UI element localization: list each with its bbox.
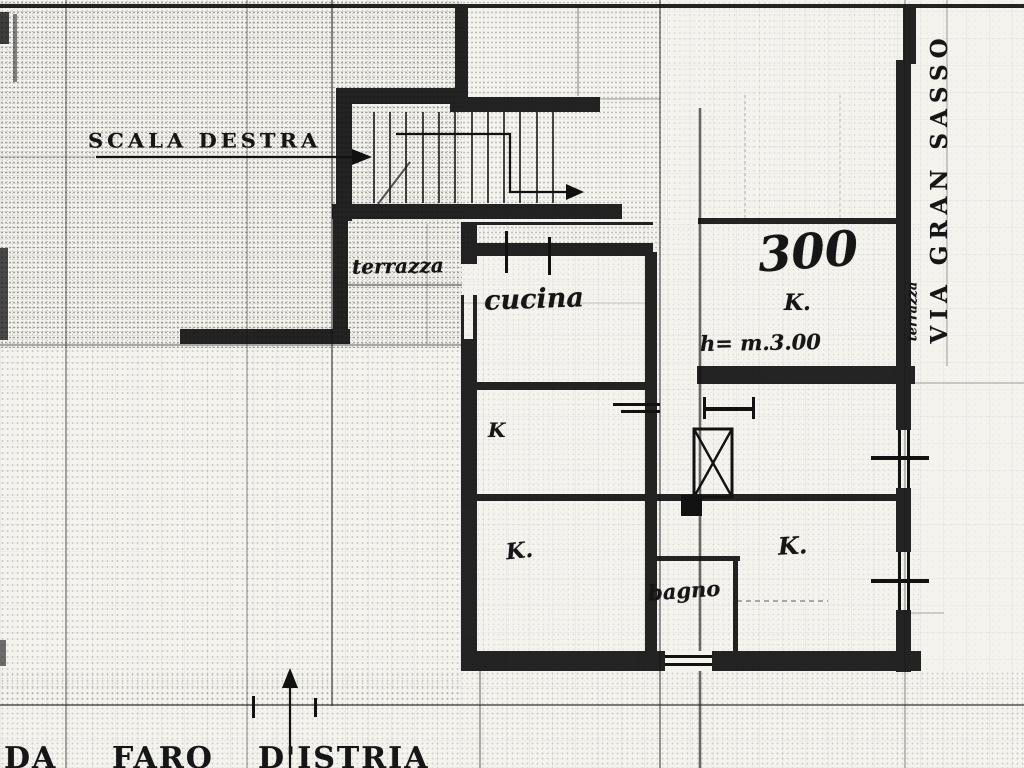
stair-label: SCALA DESTRA [88,131,321,151]
street-name-bottom-word-3: D'ISTRIA [258,744,429,768]
room-k-mid-left-label: K [488,420,505,440]
stair-treads [374,112,553,203]
terrace-l-wall-h [180,329,350,344]
terrace-l-wall-v [333,206,348,344]
street-name-bottom-word-2: FARO [112,744,214,768]
staircase [374,112,553,204]
stair-up-path [396,134,566,192]
elevator-shaft-icon [681,429,732,516]
ceiling-height-note: h= m.3.00 [700,331,821,354]
apartment-number: 300 [756,225,859,280]
scan-marks [0,12,17,666]
bagno-label: bagno [647,578,721,604]
arrowhead-up-icon [282,668,298,688]
right-wall-upper [896,60,911,430]
street-name-right: VIA GRAN SASSO [928,0,968,388]
cucina-label: cucina [484,284,585,314]
terrazza-upper-label: terrazza [352,255,444,277]
room-k-upper-right-label: K. [784,292,811,314]
top-border-line [0,4,1024,8]
floor-plan-drawing [0,0,1024,768]
arrowhead-right-icon [352,149,372,165]
room-k-lower-right-label: K. [777,533,807,558]
floor-plan-page: SCALA DESTRA terrazza cucina K K. 300 K.… [0,0,1024,768]
street-name-bottom-word-1: DA [4,744,57,768]
walls [0,4,1024,672]
cucina-top-wall [461,243,653,256]
arrowhead-right-icon [566,184,584,200]
terrazza-right-label: terrazza [907,257,920,367]
room-k-lower-left-label: K. [505,539,534,564]
